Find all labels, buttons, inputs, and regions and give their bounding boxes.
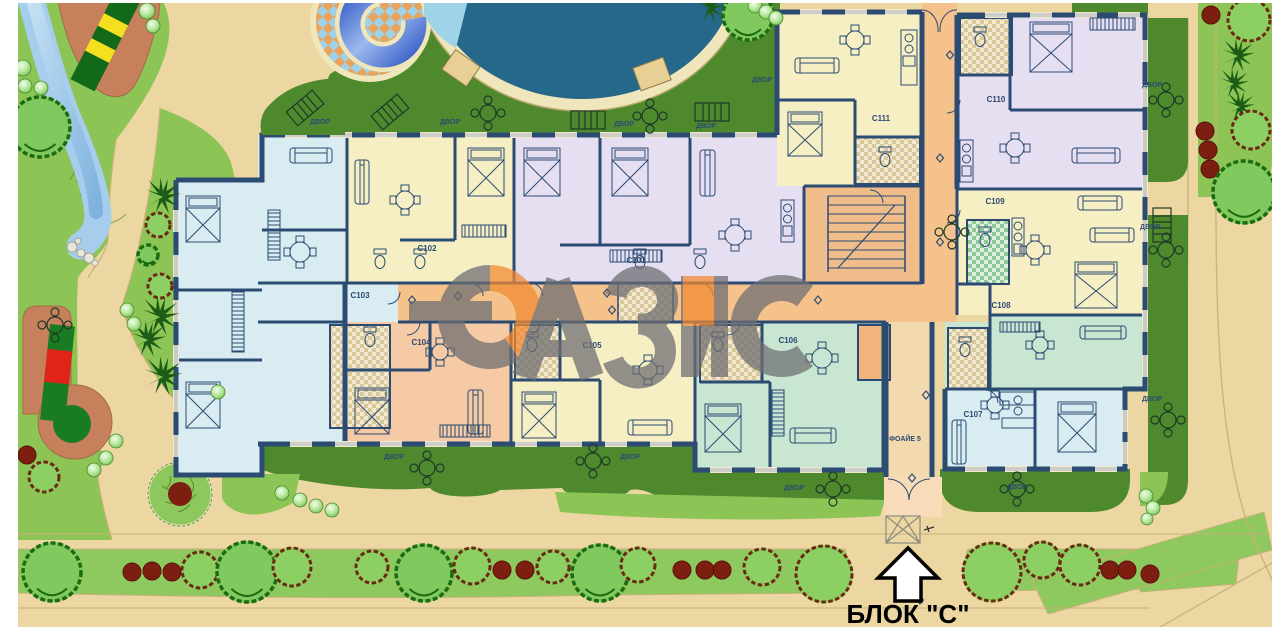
svg-text:ДВОР: ДВОР [696,123,716,130]
svg-text:C111: C111 [872,114,891,123]
svg-text:ДВОР: ДВОР [1142,82,1162,89]
svg-text:C108: C108 [991,301,1011,310]
svg-text:ДВОР: ДВОР [1140,224,1160,231]
svg-text:C110: C110 [987,95,1006,104]
svg-text:C101: C101 [626,256,646,265]
svg-text:C109: C109 [985,197,1005,206]
svg-text:C102: C102 [417,244,437,253]
svg-text:ДВОР: ДВОР [1007,484,1027,491]
svg-text:C106: C106 [778,336,798,345]
svg-text:C103: C103 [350,291,370,300]
svg-text:ДВОР: ДВОР [620,454,640,461]
svg-text:БЛОК "С": БЛОК "С" [846,599,969,629]
svg-text:ДВОР: ДВОР [752,77,772,84]
svg-text:ДВОР: ДВОР [310,119,330,126]
svg-text:C104: C104 [411,338,431,347]
svg-text:C107: C107 [963,410,983,419]
svg-text:ДВОР: ДВОР [384,454,404,461]
svg-text:ДВОР: ДВОР [440,119,460,126]
svg-text:ДВОР: ДВОР [614,121,634,128]
svg-text:ДВОР: ДВОР [1142,396,1162,403]
svg-text:ФОАЙЕ 5: ФОАЙЕ 5 [889,434,921,443]
svg-text:ДВОР: ДВОР [784,485,804,492]
